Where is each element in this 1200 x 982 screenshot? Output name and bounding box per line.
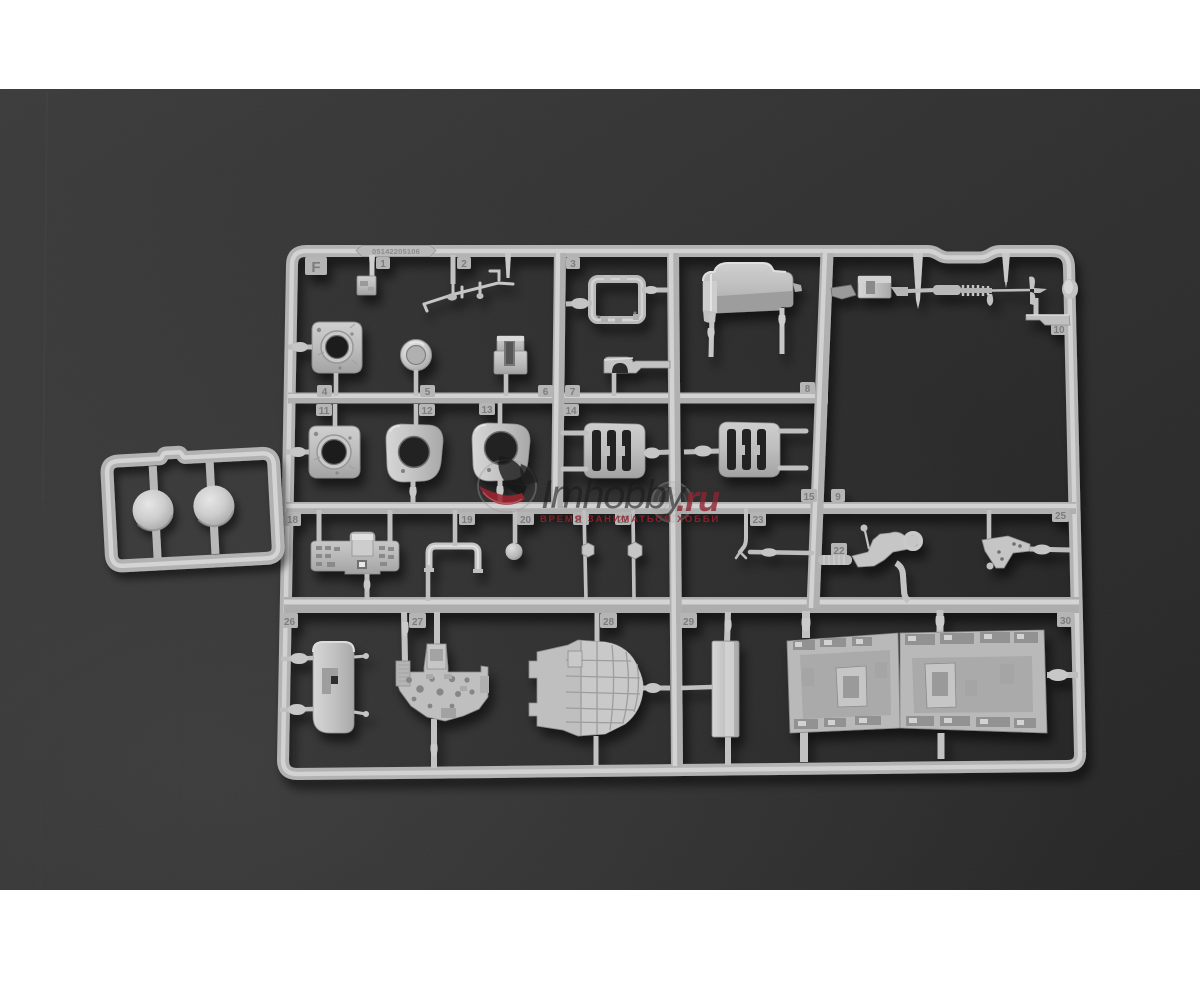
svg-text:14: 14 — [565, 406, 577, 417]
svg-text:7: 7 — [570, 387, 576, 398]
svg-text:12: 12 — [421, 406, 433, 417]
svg-text:20: 20 — [520, 515, 532, 526]
svg-text:F: F — [311, 259, 320, 276]
svg-text:6: 6 — [543, 387, 549, 398]
svg-text:29: 29 — [683, 617, 695, 628]
svg-text:30: 30 — [1060, 616, 1072, 627]
svg-text:27: 27 — [412, 617, 424, 628]
svg-text:25: 25 — [1055, 511, 1067, 522]
svg-text:10: 10 — [1053, 325, 1065, 336]
svg-text:8: 8 — [805, 384, 811, 395]
svg-text:Imhobby: Imhobby — [541, 473, 688, 517]
svg-text:3: 3 — [570, 259, 576, 270]
svg-text:28: 28 — [603, 617, 615, 628]
svg-text:1: 1 — [380, 259, 386, 270]
svg-text:18: 18 — [287, 515, 299, 526]
svg-text:15: 15 — [803, 492, 815, 503]
svg-text:26: 26 — [284, 617, 296, 628]
svg-text:13: 13 — [481, 405, 493, 416]
svg-text:ВРЕМЯ ЗАНИМАТЬСЯ ХОББИ: ВРЕМЯ ЗАНИМАТЬСЯ ХОББИ — [540, 514, 720, 525]
svg-text:23: 23 — [752, 515, 764, 526]
svg-text:2: 2 — [461, 259, 467, 270]
svg-text:05142205106: 05142205106 — [372, 247, 420, 256]
svg-text:5: 5 — [425, 387, 431, 398]
svg-text:11: 11 — [319, 406, 330, 417]
svg-text:.ru: .ru — [676, 478, 720, 519]
svg-text:4: 4 — [322, 387, 328, 398]
svg-text:19: 19 — [461, 515, 473, 526]
svg-text:9: 9 — [835, 492, 841, 503]
